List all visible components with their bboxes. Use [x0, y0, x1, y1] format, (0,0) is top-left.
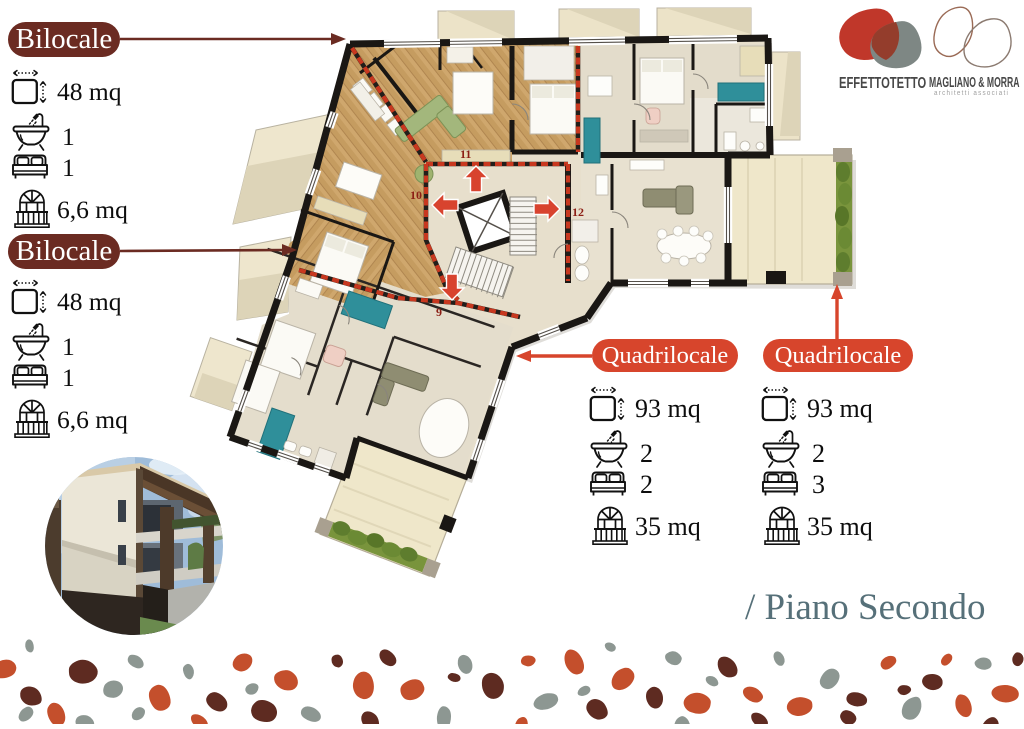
svg-text:1: 1 [62, 363, 75, 392]
svg-text:2: 2 [640, 439, 653, 468]
svg-text:2: 2 [812, 439, 825, 468]
svg-text:9: 9 [436, 305, 442, 319]
svg-text:12: 12 [572, 205, 584, 219]
svg-text:architetti associati: architetti associati [934, 90, 1009, 98]
svg-text:/ Piano Secondo: / Piano Secondo [745, 587, 985, 628]
svg-text:Quadrilocale: Quadrilocale [602, 342, 729, 369]
svg-text:11: 11 [460, 147, 471, 161]
svg-text:35 mq: 35 mq [807, 512, 873, 541]
svg-text:Quadrilocale: Quadrilocale [775, 342, 902, 369]
svg-text:Bilocale: Bilocale [16, 235, 113, 267]
svg-text:35 mq: 35 mq [635, 512, 701, 541]
svg-text:1: 1 [62, 153, 75, 182]
svg-text:6,6 mq: 6,6 mq [57, 405, 128, 434]
svg-text:1: 1 [62, 332, 75, 361]
svg-text:93 mq: 93 mq [635, 394, 701, 423]
svg-text:Bilocale: Bilocale [16, 23, 113, 55]
svg-text:3: 3 [812, 470, 825, 499]
svg-text:93 mq: 93 mq [807, 394, 873, 423]
svg-text:48 mq: 48 mq [57, 287, 122, 316]
svg-text:6,6 mq: 6,6 mq [57, 195, 128, 224]
svg-text:MAGLIANO & MORRA: MAGLIANO & MORRA [929, 74, 1020, 91]
svg-text:1: 1 [62, 122, 75, 151]
svg-text:48 mq: 48 mq [57, 77, 122, 106]
svg-text:10: 10 [410, 188, 422, 202]
svg-text:EFFETTOTETTO: EFFETTOTETTO [839, 73, 926, 92]
svg-text:2: 2 [640, 470, 653, 499]
